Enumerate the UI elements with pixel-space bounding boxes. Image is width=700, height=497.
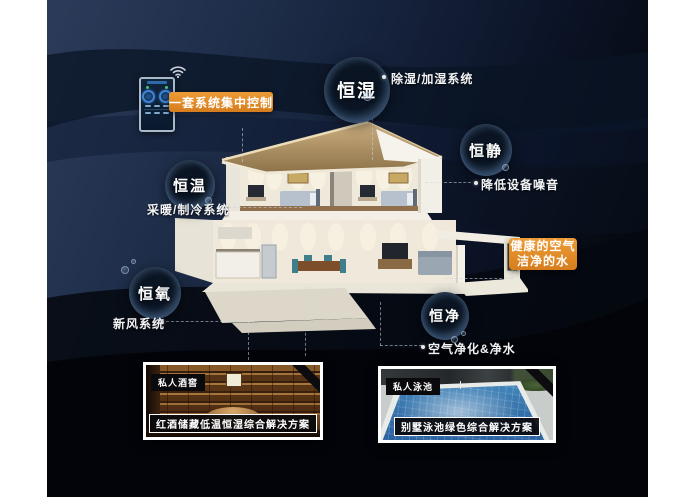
photo-wine-cellar: 私人酒窖 红酒储藏低温恒湿综合解决方案 [143,362,323,440]
connector-dot [421,345,425,349]
cellar-picture-frame [226,373,242,387]
connector-freshair [166,321,238,322]
wifi-icon [169,63,187,78]
connector-healthy-v [512,270,513,279]
connector-roof-guide [242,128,243,162]
panel-status-lights [141,84,173,89]
bubble-constant-humidity: 恒湿 [324,57,390,123]
connector-dot [474,181,478,185]
bubble-label: 恒净 [429,306,461,326]
connector-purify-h [380,345,422,346]
pool-image: 私人泳池 别墅泳池绿色综合解决方案 [381,369,553,440]
wine-cellar-image: 私人酒窖 红酒储藏低温恒湿综合解决方案 [146,365,320,437]
connector-photo1b [305,287,306,356]
connector-dot [382,75,386,79]
connector-quiet [425,182,471,183]
central-control-badge: 一套系统集中控制 [169,92,273,112]
bubble-label: 恒氧 [138,283,172,304]
connector-purify-v [380,302,381,346]
panel-divider [144,109,170,110]
connector-healthy-h [445,278,512,279]
note-dehumidify-system: 除湿/加湿系统 [391,70,473,87]
bubble-label: 恒温 [173,175,207,196]
note-fresh-air-system: 新风系统 [113,315,165,332]
dark-canvas: 一套系统集中控制 健康的空气 洁净的水 恒湿 恒静 恒温 恒氧 恒净 [47,0,648,497]
mini-bubble [121,266,129,274]
note-noise-reduction: 降低设备噪音 [481,176,559,193]
healthy-air-line2: 洁净的水 [517,254,569,269]
note-heating-cooling-system: 采暖/制冷系统 [147,201,229,218]
mini-bubble [363,92,372,101]
central-control-label: 一套系统集中控制 [169,94,273,111]
mini-bubble [131,259,136,264]
healthy-air-badge: 健康的空气 洁净的水 [509,238,577,270]
panel-buttons [141,112,173,114]
photo-tag-wine-cellar: 私人酒窖 [151,374,205,391]
connector-photo1 [248,322,249,360]
photo-caption-wine-cellar: 红酒储藏低温恒湿综合解决方案 [149,414,317,433]
photo-private-pool: 私人泳池 别墅泳池绿色综合解决方案 [378,366,556,443]
mini-bubble [461,331,466,336]
infographic-stage: 一套系统集中控制 健康的空气 洁净的水 恒湿 恒静 恒温 恒氧 恒净 [0,0,700,497]
note-air-water-purification: 空气净化&净水 [428,340,516,357]
mini-bubble [502,164,509,171]
corner-ribbon [290,365,320,395]
healthy-air-line1: 健康的空气 [510,239,575,254]
connector-heating [223,207,302,208]
pool-ladder [460,381,461,389]
photo-caption-pool: 别墅泳池绿色综合解决方案 [394,417,540,436]
photo-tag-pool: 私人泳池 [386,378,440,395]
bubble-constant-oxygen: 恒氧 [129,267,181,319]
corner-ribbon [523,369,553,399]
bubble-label: 恒静 [469,140,503,161]
